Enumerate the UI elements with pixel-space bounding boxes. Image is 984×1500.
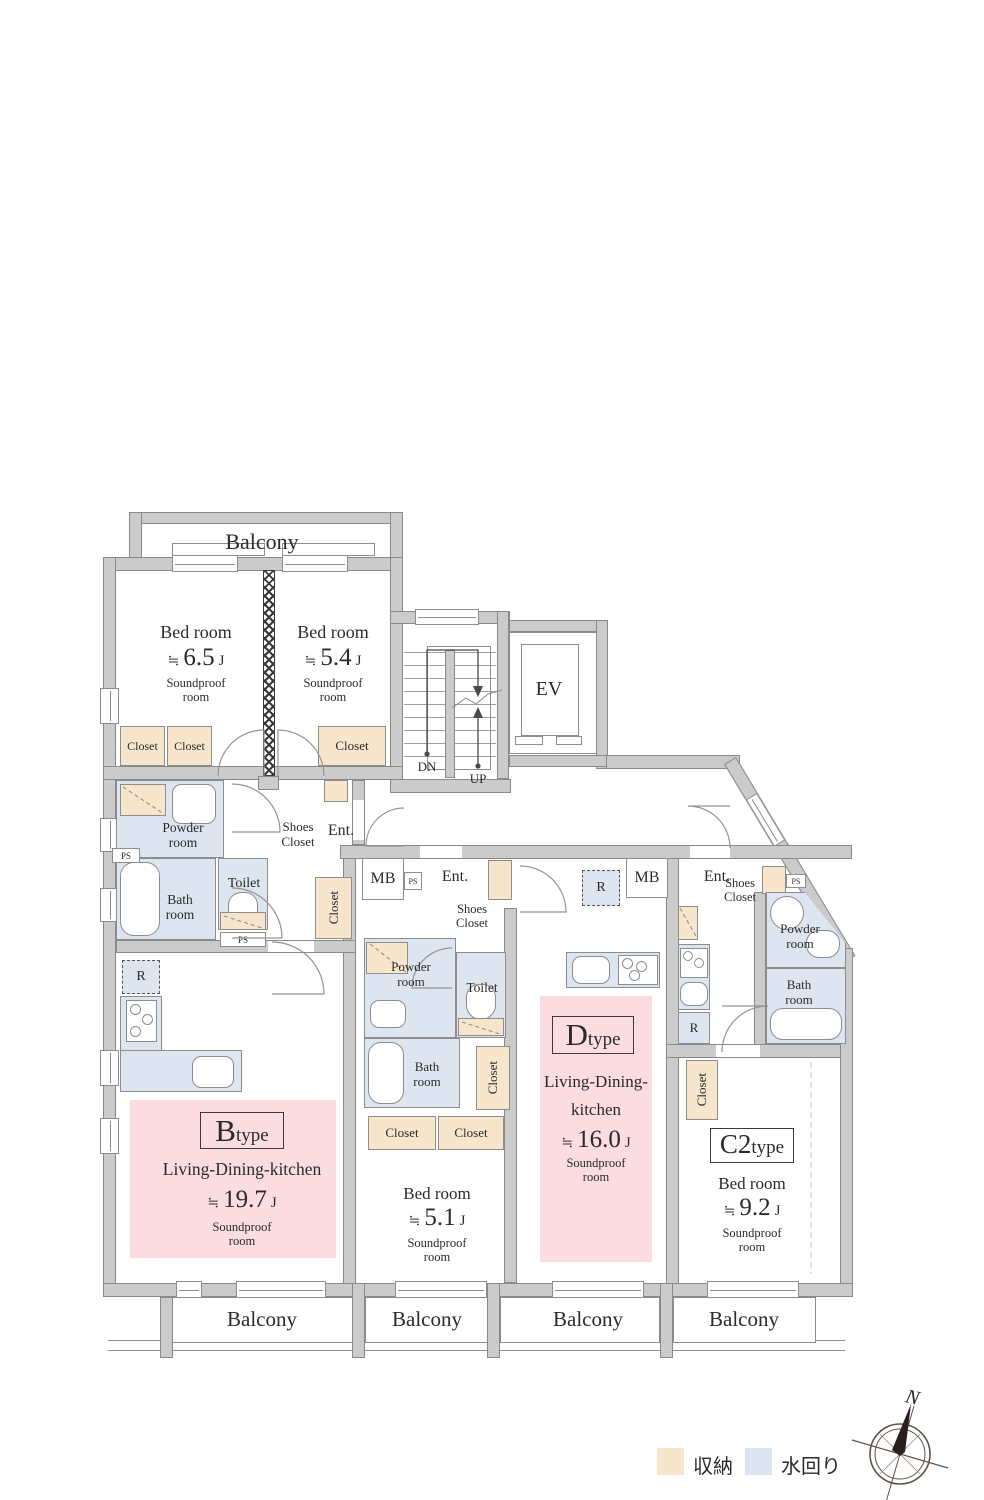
- door-arc-bedroom-a2: [278, 730, 324, 776]
- size-unit: J: [625, 1135, 631, 1152]
- balcony-label: Balcony: [709, 1307, 779, 1331]
- b-toilet-label: Toilet: [216, 876, 272, 892]
- c2-bath-label: Bath room: [764, 978, 834, 1007]
- shoes-line1: Shoes: [712, 876, 768, 890]
- d-shoes-label: Shoes Closet: [442, 902, 502, 930]
- soundproof-line2: room: [692, 1240, 812, 1254]
- size-unit: J: [271, 1195, 277, 1212]
- c2-powder-label: Powder room: [758, 922, 842, 951]
- type-suffix: type: [236, 1125, 269, 1147]
- size-value: 5.1: [424, 1204, 455, 1232]
- b-bath-label: Bath room: [140, 892, 220, 922]
- up-label: UP: [458, 772, 498, 787]
- soundproof-line2: room: [536, 1170, 656, 1184]
- size-unit: J: [219, 653, 225, 670]
- balcony-4-label: Balcony: [664, 1308, 824, 1332]
- approx-symbol: ≒: [207, 1196, 219, 1212]
- size-unit: J: [460, 1213, 466, 1230]
- b-toilet-mat-diagonal: [224, 916, 262, 928]
- balcony-3-label: Balcony: [508, 1308, 668, 1332]
- balcony-label: Balcony: [225, 529, 298, 554]
- type-suffix: type: [588, 1029, 621, 1051]
- bedroom-a2-size: ≒5.4J: [273, 644, 393, 672]
- legend-water-label: 水回り: [781, 1450, 841, 1479]
- approx-symbol: ≒: [305, 654, 317, 670]
- b-soundproof: Soundproof room: [182, 1220, 302, 1248]
- up-arrowhead: [473, 707, 483, 718]
- type-letter: B: [215, 1113, 236, 1149]
- soundproof-line1: Soundproof: [377, 1236, 497, 1250]
- bedroom-a1-size: ≒6.5J: [136, 644, 256, 672]
- balcony-top-label: Balcony: [182, 530, 342, 555]
- plan-linework: [0, 0, 984, 1500]
- c2-washer-diagonal: [680, 908, 697, 938]
- d-bath-label: Bath room: [392, 1060, 462, 1089]
- shoes-line2: Closet: [442, 916, 502, 930]
- bath-line1: Bath: [392, 1060, 462, 1075]
- dn-path: [427, 650, 478, 754]
- door-arc-b-entry: [366, 808, 404, 846]
- bedroom-a1-name: Bed room: [136, 622, 256, 642]
- compass: N: [848, 1386, 958, 1500]
- dn-label: DN: [407, 760, 447, 775]
- b-size: ≒19.7J: [172, 1186, 312, 1214]
- powder-line2: room: [758, 937, 842, 952]
- approx-symbol: ≒: [168, 654, 180, 670]
- type-letter: C2: [720, 1129, 752, 1160]
- size-value: 5.4: [320, 644, 351, 672]
- size-unit: J: [775, 1203, 781, 1220]
- bedroom-d-soundproof: Soundproof room: [377, 1236, 497, 1264]
- d-ldk-line2: kitchen: [530, 1100, 662, 1119]
- toilet-text: Toilet: [466, 980, 497, 995]
- soundproof-line2: room: [182, 1234, 302, 1248]
- bath-line1: Bath: [140, 892, 220, 907]
- powder-line1: Powder: [758, 922, 842, 937]
- bedroom-d-size: ≒5.1J: [377, 1204, 497, 1232]
- balcony-label: Balcony: [227, 1307, 297, 1331]
- door-arc-b-bath: [232, 888, 282, 938]
- room-name: Bed room: [403, 1184, 471, 1203]
- d-size: ≒16.0J: [526, 1126, 666, 1154]
- bedroom-a1-soundproof: Soundproof room: [136, 676, 256, 704]
- room-name: Bed room: [297, 622, 369, 642]
- ent-text: Ent.: [328, 822, 354, 839]
- approx-symbol: ≒: [409, 1214, 421, 1230]
- legend-storage-swatch: [657, 1448, 684, 1475]
- floor-plan: Closet Closet Closet PS PS Closet MB R P…: [0, 0, 984, 1500]
- b-powder-label: Powder room: [138, 820, 228, 850]
- balcony-2-label: Balcony: [347, 1308, 507, 1332]
- legend-storage-text: 収納: [693, 1456, 733, 1478]
- d-ldk-line1: Living-Dining-: [530, 1072, 662, 1091]
- type-suffix: type: [751, 1137, 784, 1159]
- size-value: 6.5: [183, 644, 214, 672]
- soundproof-line2: room: [136, 690, 256, 704]
- bath-line1: Bath: [764, 978, 834, 993]
- toilet-text: Toilet: [228, 876, 260, 891]
- ev-label: EV: [519, 678, 579, 700]
- door-arc-c2-bedroom: [722, 1006, 768, 1052]
- b-ent-label: Ent.: [316, 822, 366, 840]
- bedroom-d-name: Bed room: [377, 1184, 497, 1203]
- powder-line2: room: [368, 975, 454, 990]
- d-soundproof: Soundproof room: [536, 1156, 656, 1184]
- d-toilet-mat-diagonal: [462, 1022, 500, 1034]
- dn-arrowhead: [473, 686, 483, 697]
- approx-symbol: ≒: [561, 1136, 573, 1152]
- size-unit: J: [356, 653, 362, 670]
- bedroom-c2-size: ≒9.2J: [692, 1194, 812, 1222]
- bath-line2: room: [764, 993, 834, 1008]
- c2-type-box: C2type: [710, 1128, 794, 1163]
- legend-storage-label: 収納: [693, 1450, 733, 1479]
- bedroom-a2-soundproof: Soundproof room: [273, 676, 393, 704]
- size-value: 16.0: [577, 1126, 621, 1154]
- soundproof-line2: room: [377, 1250, 497, 1264]
- soundproof-line2: room: [273, 690, 393, 704]
- ev-text: EV: [536, 678, 563, 700]
- stair-arrows: [424, 650, 502, 769]
- door-arc-b-ldk: [272, 942, 324, 994]
- dn-text: DN: [418, 759, 437, 774]
- d-powder-label: Powder room: [368, 960, 454, 989]
- d-toilet-label: Toilet: [456, 980, 508, 995]
- size-value: 19.7: [223, 1186, 267, 1214]
- room-name: Bed room: [718, 1174, 786, 1193]
- bedroom-a2-name: Bed room: [273, 622, 393, 642]
- ldk-text: Living-Dining-kitchen: [163, 1159, 321, 1179]
- soundproof-line1: Soundproof: [182, 1220, 302, 1234]
- door-arc-bedroom-a1: [218, 730, 264, 776]
- bedroom-c2-soundproof: Soundproof room: [692, 1226, 812, 1254]
- room-name: Bed room: [160, 622, 232, 642]
- bath-line2: room: [392, 1075, 462, 1090]
- up-text: UP: [470, 771, 487, 786]
- powder-line1: Powder: [368, 960, 454, 975]
- powder-line2: room: [138, 835, 228, 850]
- d-ent-label: Ent.: [430, 868, 480, 886]
- balcony-label: Balcony: [553, 1307, 623, 1331]
- c2-shoes-label: Shoes Closet: [712, 876, 768, 904]
- b-ldk-label: Living-Dining-kitchen: [143, 1160, 341, 1180]
- soundproof-line1: Soundproof: [536, 1156, 656, 1170]
- soundproof-line1: Soundproof: [692, 1226, 812, 1240]
- door-arc-d-entry: [520, 866, 566, 912]
- approx-symbol: ≒: [724, 1204, 736, 1220]
- ldk-text: Living-Dining-: [544, 1072, 648, 1091]
- bedroom-c2-name: Bed room: [692, 1174, 812, 1193]
- compass-north-text: N: [902, 1386, 923, 1410]
- legend-water-text: 水回り: [781, 1456, 841, 1478]
- powder-line1: Powder: [138, 820, 228, 835]
- ldk-text: kitchen: [571, 1100, 621, 1119]
- ent-text: Ent.: [442, 868, 468, 885]
- legend-water-swatch: [745, 1448, 772, 1475]
- type-letter: D: [565, 1017, 587, 1053]
- b-type-box: Btype: [200, 1112, 284, 1149]
- shoes-line1: Shoes: [442, 902, 502, 916]
- balcony-label: Balcony: [392, 1307, 462, 1331]
- bath-line2: room: [140, 907, 220, 922]
- door-arc-c2-entry: [688, 806, 730, 848]
- balcony-1-label: Balcony: [182, 1308, 342, 1332]
- soundproof-line1: Soundproof: [136, 676, 256, 690]
- size-value: 9.2: [739, 1194, 770, 1222]
- b-washer-diagonal: [123, 787, 164, 814]
- shoes-line2: Closet: [712, 890, 768, 904]
- d-type-box: Dtype: [552, 1016, 634, 1054]
- soundproof-line1: Soundproof: [273, 676, 393, 690]
